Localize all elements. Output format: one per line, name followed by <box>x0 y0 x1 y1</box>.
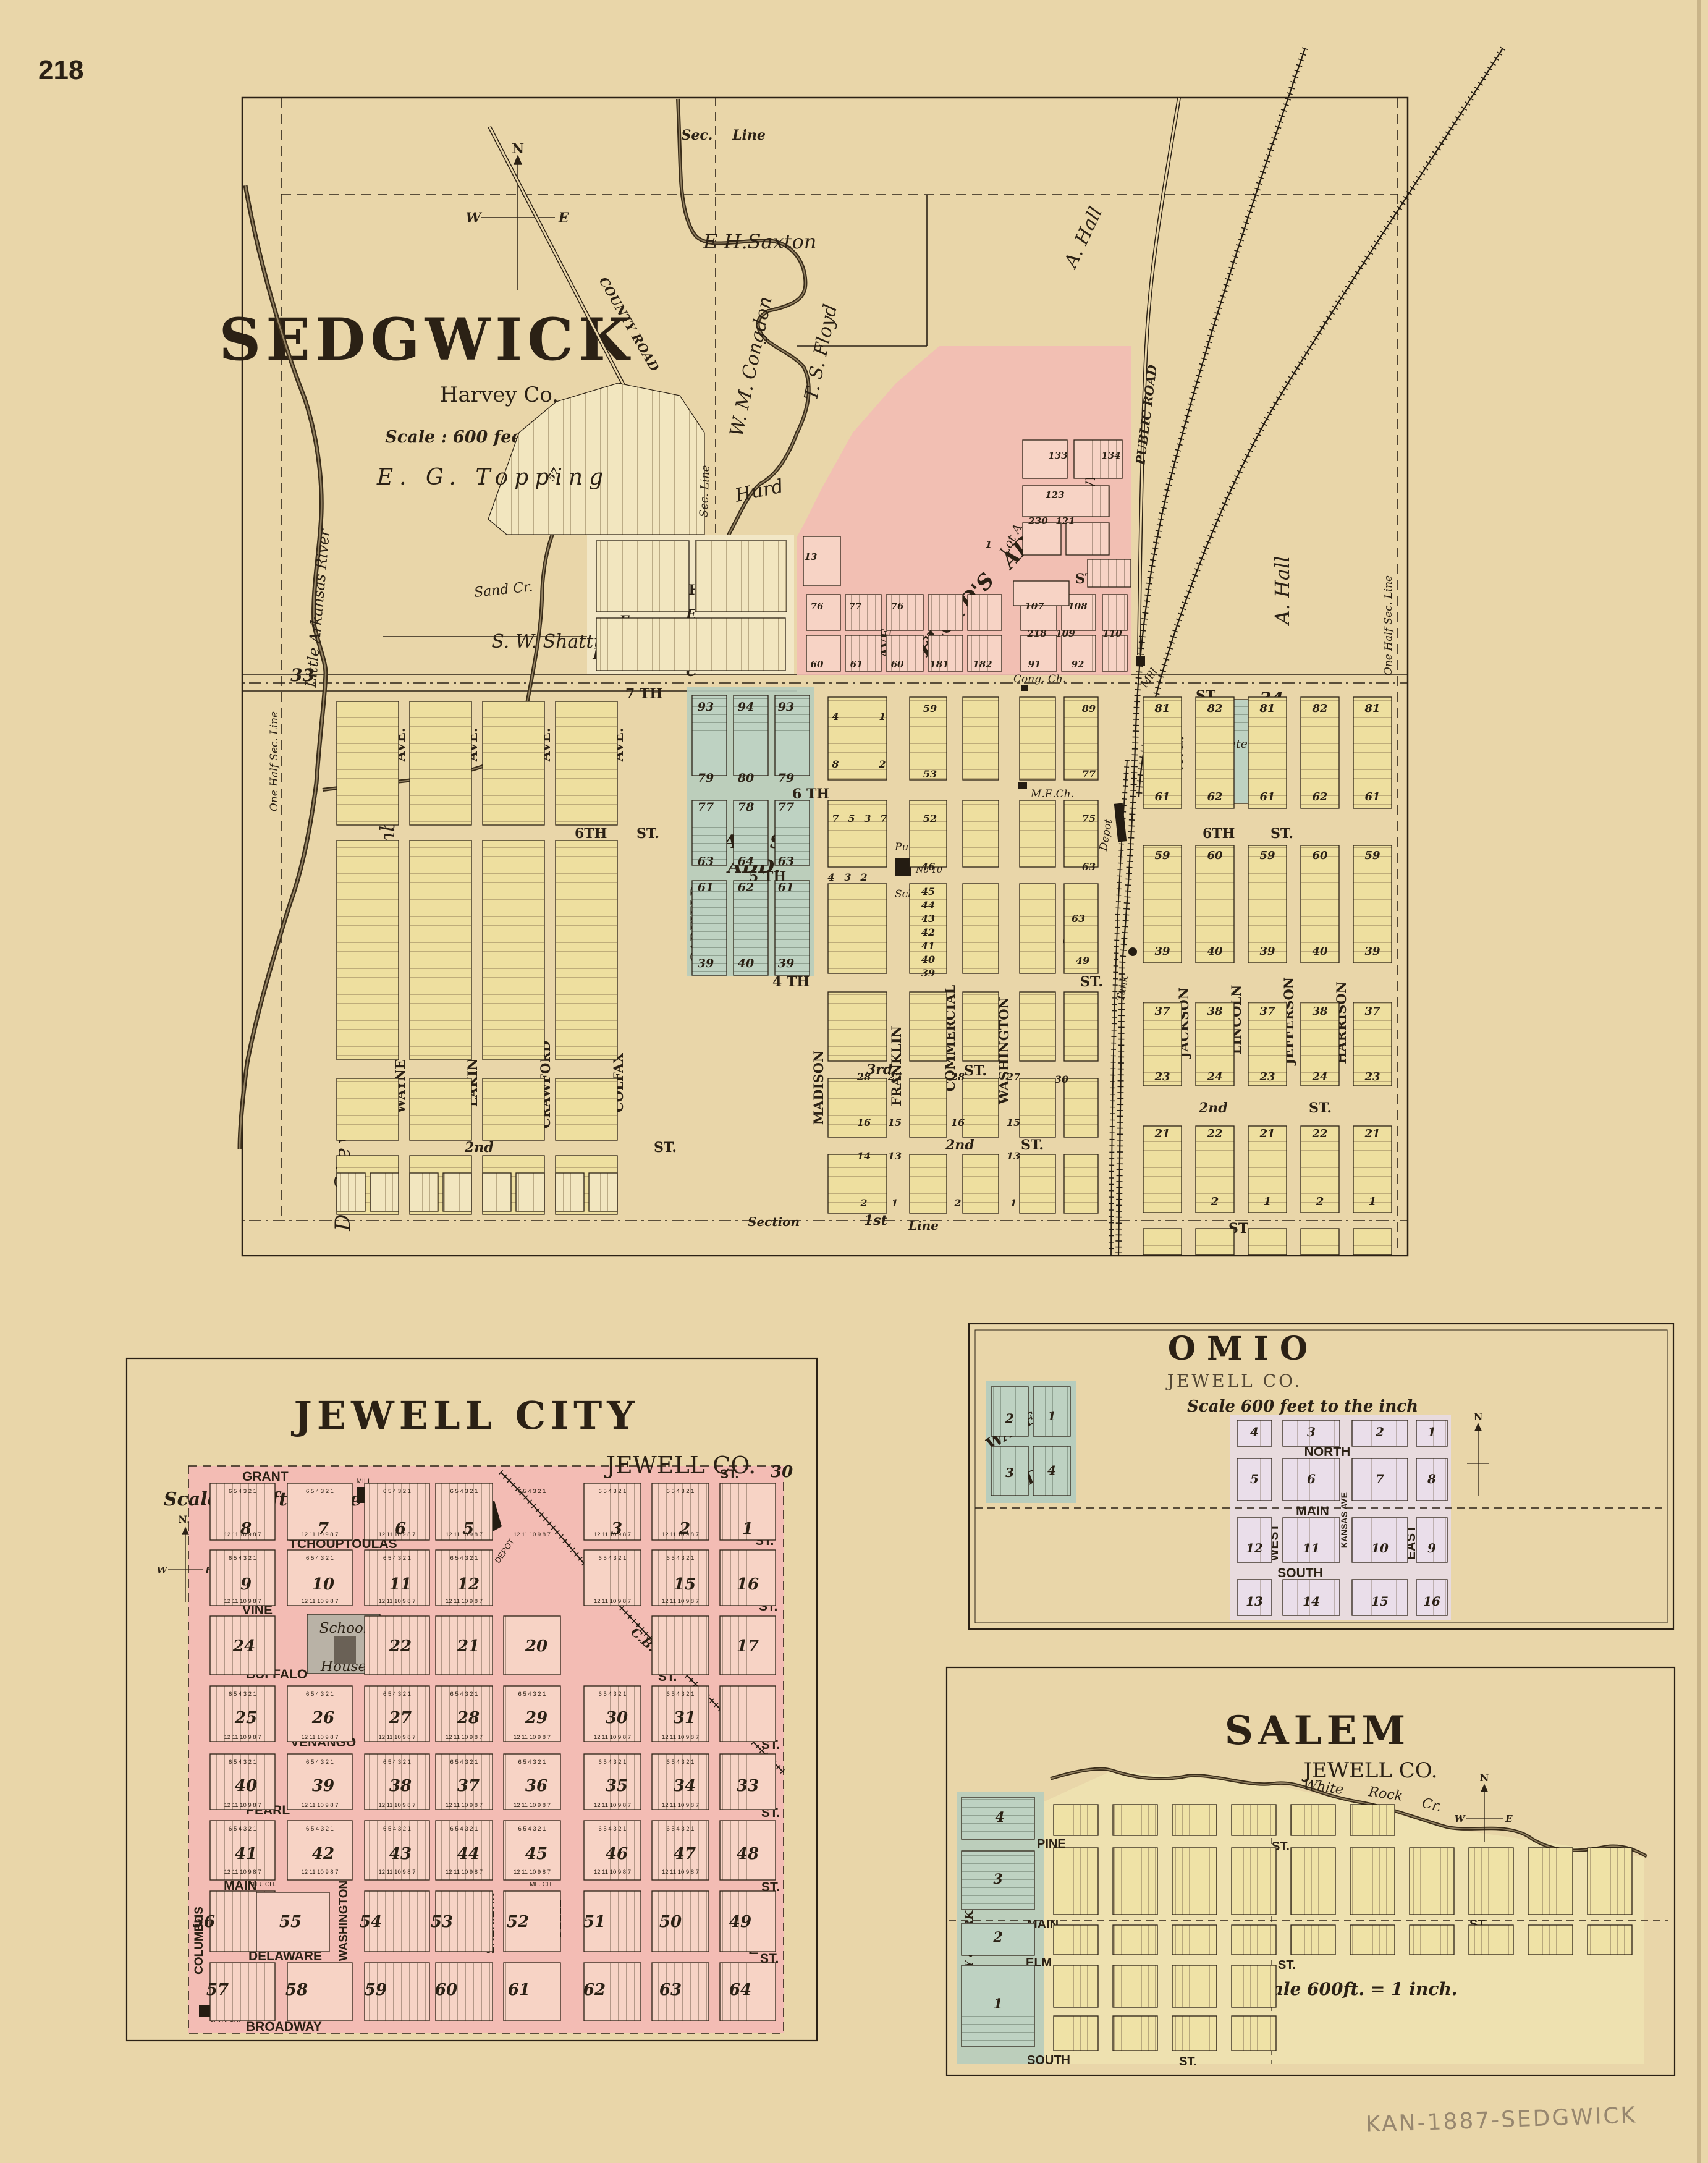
block-number: 7 <box>880 813 887 824</box>
town-block <box>910 1078 947 1137</box>
town-block <box>596 618 785 671</box>
block-number: 23 <box>1259 1070 1275 1083</box>
railroad-branch-northeast <box>1139 48 1503 797</box>
town-block <box>1113 2016 1157 2051</box>
lot-numbers: 6 5 4 3 2 1 <box>667 1555 695 1562</box>
block-number: 17 <box>737 1637 759 1656</box>
lot-numbers: 6 5 4 3 2 1 <box>599 1691 627 1698</box>
water-tank <box>1128 947 1137 956</box>
town-block <box>1291 1805 1335 1835</box>
block-number: 40 <box>921 954 935 965</box>
block-number: 16 <box>857 1117 871 1128</box>
town-block <box>337 840 399 1060</box>
town-block <box>1172 1848 1217 1915</box>
block-number: 28 <box>457 1709 480 1727</box>
block-number: 31 <box>674 1709 696 1727</box>
block-number: 30 <box>606 1709 628 1727</box>
lot-numbers: 6 5 4 3 2 1 <box>383 1555 411 1562</box>
block-number: 3 <box>993 1871 1002 1887</box>
town-block <box>806 595 840 630</box>
lot-numbers: 6 5 4 3 2 1 <box>518 1691 546 1698</box>
lot-numbers: 12 11 10 9 8 7 <box>378 1802 415 1809</box>
lot-numbers: 12 11 10 9 8 7 <box>594 1869 631 1876</box>
block-number: 63 <box>698 855 714 868</box>
block-number: 40 <box>738 957 754 970</box>
avenue-franklin: FRANKLIN <box>889 1026 904 1106</box>
town-block <box>556 701 617 825</box>
block-number: 58 <box>285 1981 308 1999</box>
half-sec-line-east-label: One Half Sec. Line <box>1382 575 1395 675</box>
block-number: 49 <box>729 1913 751 1931</box>
lot-numbers: 6 5 4 3 2 1 <box>229 1826 256 1832</box>
town-block <box>1088 559 1131 587</box>
town-block <box>1283 1518 1340 1562</box>
block-number: 1 <box>1427 1424 1436 1439</box>
street-2nd-central: 2nd <box>945 1137 974 1153</box>
lot-numbers: 12 11 10 9 8 7 <box>594 1802 631 1809</box>
town-block <box>886 595 923 630</box>
town-block <box>1020 992 1055 1061</box>
block-number: 56 <box>193 1913 215 1931</box>
town-block <box>516 1173 544 1211</box>
lot-numbers: 6 5 4 3 2 1 <box>599 1826 627 1832</box>
me-church-building <box>1018 782 1027 789</box>
block-number: 62 <box>738 881 754 894</box>
town-block <box>1350 1805 1395 1835</box>
block-number: 59 <box>1364 849 1380 862</box>
omio-street-main: MAIN <box>1296 1504 1329 1518</box>
block-number: 35 <box>606 1777 628 1795</box>
town-block <box>910 992 947 1061</box>
lot-numbers: 6 5 4 3 2 1 <box>599 1759 627 1766</box>
lot-numbers: 6 5 4 3 2 1 <box>599 1555 627 1562</box>
lot-numbers: 12 11 10 9 8 7 <box>301 1869 338 1876</box>
block-number: 81 <box>1154 702 1170 715</box>
block-number: 43 <box>921 913 935 925</box>
town-block <box>443 1173 471 1211</box>
block-number: 37 <box>1364 1005 1380 1018</box>
block-number: 25 <box>234 1709 257 1727</box>
lot-numbers: 12 11 10 9 8 7 <box>301 1531 338 1538</box>
omio-street-south: SOUTH <box>1277 1566 1323 1580</box>
block-number: 60 <box>435 1981 457 1999</box>
block-number: 30 <box>1055 1073 1068 1085</box>
compass-n-label: N <box>512 141 524 157</box>
block-number: 61 <box>1364 790 1380 803</box>
lot-numbers: 6 5 4 3 2 1 <box>599 1488 627 1495</box>
omio-ave-kansas: KANSAS AVE <box>1339 1492 1349 1548</box>
lot-numbers: 6 5 4 3 2 1 <box>450 1488 478 1495</box>
block-number: 38 <box>1312 1005 1328 1018</box>
block-number: 16 <box>1423 1594 1440 1609</box>
block-number: 134 <box>1101 450 1120 461</box>
town-block <box>1102 635 1127 671</box>
block-number: 22 <box>389 1637 412 1656</box>
town-block <box>1113 1848 1157 1915</box>
block-number: 40 <box>235 1777 257 1795</box>
salem-compass-n: N <box>1480 1772 1489 1784</box>
block-number: 40 <box>1312 945 1328 958</box>
town-block <box>1232 1965 1276 2007</box>
town-block <box>1054 1805 1098 1835</box>
street-1st: 1st <box>864 1213 887 1229</box>
town-block <box>1528 1925 1573 1955</box>
street-6th-east: 6TH <box>1203 826 1235 842</box>
block-number: 121 <box>1055 515 1075 527</box>
block-number: 61 <box>778 881 794 894</box>
block-number: 52 <box>507 1913 529 1931</box>
sec-line-label-a: Sec. <box>682 127 713 143</box>
block-number: 81 <box>1259 702 1275 715</box>
lot-numbers: 12 11 10 9 8 7 <box>514 1734 551 1741</box>
block-number: 1 <box>742 1520 753 1538</box>
block-number: 51 <box>583 1913 606 1931</box>
salem-scale: Scale 600ft. = 1 inch. <box>1249 1979 1457 1999</box>
town-block <box>695 541 787 612</box>
block-number: 39 <box>1259 945 1275 958</box>
block-number: 1 <box>879 711 886 722</box>
block-number: 64 <box>729 1981 751 1999</box>
town-block <box>963 884 999 973</box>
block-number: 7 <box>1376 1471 1384 1486</box>
cong-church-label: Cong. Ch. <box>1013 673 1066 685</box>
block-number: 2 <box>878 758 886 770</box>
lot-numbers: 12 11 10 9 8 7 <box>224 1802 261 1809</box>
block-number: 60 <box>1312 849 1328 862</box>
lot-numbers: 6 5 4 3 2 1 <box>667 1691 695 1698</box>
town-block <box>1172 2016 1217 2051</box>
town-block <box>963 697 999 780</box>
town-block <box>1232 1925 1276 1955</box>
block-number: 93 <box>698 700 714 714</box>
lot-numbers: 12 11 10 9 8 7 <box>662 1598 699 1605</box>
street-7th: 7 TH <box>625 686 662 702</box>
lot-numbers: 12 11 10 9 8 7 <box>378 1598 415 1605</box>
block-number: 15 <box>1371 1594 1389 1609</box>
street-2nd-west: 2nd <box>464 1140 494 1156</box>
river-label: Little Arkansas River <box>302 528 334 689</box>
lot-numbers: 12 11 10 9 8 7 <box>224 1869 261 1876</box>
town-block <box>589 1173 617 1211</box>
block-number: 28 <box>950 1071 965 1083</box>
street-6th-east-st: ST. <box>1270 826 1293 842</box>
town-block <box>828 800 887 867</box>
town-block <box>1353 1229 1392 1255</box>
lot-numbers: 12 11 10 9 8 7 <box>301 1598 338 1605</box>
block-number: 64 <box>738 855 754 868</box>
town-block <box>828 884 887 973</box>
block-number: 15 <box>674 1575 696 1594</box>
block-number: 40 <box>1207 945 1223 958</box>
town-block <box>910 800 947 867</box>
block-number: 89 <box>1081 703 1096 714</box>
town-block <box>483 701 544 825</box>
mill-label: Mill <box>1138 666 1160 691</box>
block-number: 4 <box>832 711 839 722</box>
lot-numbers: 6 5 4 3 2 1 <box>667 1826 695 1832</box>
block-number: 60 <box>891 659 904 670</box>
block-number: 5 <box>848 813 855 824</box>
half-sec-line-west-label: One Half Sec. Line <box>268 711 281 811</box>
lot-numbers: 12 11 10 9 8 7 <box>446 1802 483 1809</box>
block-number: 59 <box>1154 849 1170 862</box>
block-number: 181 <box>929 659 949 670</box>
public-road-label: PUBLIC ROAD <box>1133 363 1160 466</box>
block-number: 93 <box>778 700 794 714</box>
lot-numbers: 6 5 4 3 2 1 <box>518 1759 546 1766</box>
block-number: 1 <box>1010 1197 1017 1209</box>
block-number: 38 <box>1207 1005 1223 1018</box>
town-block <box>483 1173 511 1211</box>
town-block <box>410 1173 438 1211</box>
block-number: 45 <box>921 886 935 897</box>
town-block <box>1054 1848 1098 1915</box>
block-number: 41 <box>921 940 935 952</box>
avenue-madison: MADISON <box>811 1051 826 1125</box>
lot-numbers: 6 5 4 3 2 1 <box>383 1691 411 1698</box>
block-number: 2 <box>953 1197 961 1209</box>
town-block <box>1020 800 1055 867</box>
page-number: 218 <box>38 55 83 85</box>
block-number: 29 <box>525 1709 547 1727</box>
block-number: 39 <box>1154 945 1170 958</box>
lot-numbers: 6 5 4 3 2 1 <box>306 1759 334 1766</box>
town-block <box>410 701 471 825</box>
creek-label-rock: Rock <box>1367 1784 1403 1805</box>
block-number: 41 <box>235 1845 257 1863</box>
owner-floyd: T. S. Floyd <box>800 302 842 402</box>
block-number: 27 <box>389 1709 412 1727</box>
street-2nd-east-st: ST. <box>1309 1100 1332 1116</box>
town-block <box>1232 1848 1276 1915</box>
street-2nd-central-st: ST. <box>1021 1137 1044 1153</box>
lot-numbers: 12 11 10 9 8 7 <box>662 1869 699 1876</box>
omio-scale: Scale 600 feet to the inch <box>1187 1397 1418 1416</box>
town-block <box>337 1173 365 1211</box>
block-number: 12 <box>457 1575 480 1594</box>
block-number: 39 <box>1364 945 1380 958</box>
lot-numbers: 6 5 4 3 2 1 <box>667 1759 695 1766</box>
block-number: 61 <box>1154 790 1170 803</box>
jewell-compass-w: W <box>157 1565 169 1576</box>
block-number: 77 <box>1082 768 1096 780</box>
block-number: 3 <box>1005 1465 1014 1480</box>
lot-numbers: 12 11 10 9 8 7 <box>224 1734 261 1741</box>
block-number: 44 <box>457 1845 480 1863</box>
lot-numbers: 6 5 4 3 2 1 <box>306 1826 334 1832</box>
block-number: 82 <box>1311 702 1327 715</box>
block-number: 16 <box>737 1575 759 1594</box>
block-number: 57 <box>206 1981 229 1999</box>
atlas-page: N W E SEDGWICK Harvey Co. Scale : 600 fe… <box>0 0 1708 2163</box>
block-number: 79 <box>698 771 714 785</box>
salem-title: SALEM <box>1225 1708 1411 1754</box>
school-building <box>895 858 911 876</box>
block-number: 59 <box>1259 849 1275 862</box>
jewell-me-church-label: ME. CH. <box>530 1881 553 1888</box>
town-block <box>1023 523 1061 555</box>
lot-numbers: 6 5 4 3 2 1 <box>450 1759 478 1766</box>
salem-street-elm-st: ST. <box>1278 1958 1296 1972</box>
town-block <box>1410 1925 1454 1955</box>
jewell-chr-church-label: CHR. CH. <box>248 1881 276 1888</box>
town-block <box>1113 1965 1157 2007</box>
town-block <box>1232 1805 1276 1835</box>
block-number: 107 <box>1025 601 1044 612</box>
town-block <box>828 1154 887 1213</box>
block-number: 1 <box>1264 1195 1272 1208</box>
block-number: 109 <box>1055 628 1075 639</box>
block-number: 92 <box>1072 659 1084 670</box>
town-block <box>968 595 1002 630</box>
block-number: 2 <box>1211 1195 1219 1208</box>
block-number: 11 <box>1303 1541 1320 1556</box>
omio-street-north: NORTH <box>1304 1445 1351 1459</box>
block-number: 53 <box>431 1913 453 1931</box>
town-block <box>1588 1848 1632 1915</box>
block-number: 3 <box>1307 1424 1316 1439</box>
town-block <box>1054 2016 1098 2051</box>
town-block <box>1291 1925 1335 1955</box>
block-number: 43 <box>389 1845 412 1863</box>
block-number: 61 <box>850 659 863 670</box>
block-number: 24 <box>1206 1070 1222 1083</box>
lot-numbers: 6 5 4 3 2 1 <box>383 1826 411 1832</box>
street-4th-st: ST. <box>1080 974 1103 990</box>
town-block <box>1113 1925 1157 1955</box>
section-bottom-line-label: Line <box>908 1218 939 1233</box>
block-number: 230 <box>1028 515 1048 527</box>
salem-street-south-st: ST. <box>1179 2055 1197 2068</box>
block-number: 1 <box>891 1197 898 1209</box>
block-number: 78 <box>738 800 754 814</box>
block-number: 23 <box>1154 1070 1170 1083</box>
street-6th-west: 6TH <box>575 826 607 842</box>
omio-compass-n: N <box>1474 1411 1483 1423</box>
town-block <box>720 1686 776 1742</box>
block-number: 61 <box>508 1981 530 1999</box>
lot-numbers: 6 5 4 3 2 1 <box>229 1759 256 1766</box>
block-number: 37 <box>457 1777 480 1795</box>
town-block <box>963 1078 999 1137</box>
block-number: 1 <box>1047 1408 1056 1423</box>
lot-numbers: 6 5 4 3 2 1 <box>229 1691 256 1698</box>
salem-compass-w: W <box>1455 1813 1466 1824</box>
lot-numbers: 12 11 10 9 8 7 <box>594 1734 631 1741</box>
block-number: 1 <box>986 539 992 550</box>
block-number: 24 <box>232 1637 255 1656</box>
jewell-compass-n: N. <box>178 1513 190 1525</box>
block-number: 33 <box>737 1777 759 1795</box>
block-number: 5 <box>1250 1471 1259 1486</box>
block-number: 63 <box>659 1981 682 1999</box>
block-number: 45 <box>525 1845 547 1863</box>
lot-numbers: 12 11 10 9 8 7 <box>378 1869 415 1876</box>
block-number: 7 <box>832 813 839 824</box>
sec-line-vertical-label: Sec. Line <box>698 465 712 517</box>
block-number: 15 <box>1007 1117 1020 1128</box>
block-number: 34 <box>674 1777 696 1795</box>
lot-numbers: 12 11 10 9 8 7 <box>514 1802 551 1809</box>
town-block <box>337 1078 399 1140</box>
block-number: 62 <box>1207 790 1222 803</box>
town-block <box>1350 1925 1395 1955</box>
block-number: 1 <box>1369 1195 1377 1208</box>
block-number: 46 <box>921 861 935 873</box>
lot-numbers: 6 5 4 3 2 1 <box>518 1826 546 1832</box>
jewell-street-grant: GRANT <box>242 1470 289 1484</box>
town-block <box>1064 1078 1098 1137</box>
lot-numbers: 6 5 4 3 2 1 <box>518 1488 546 1495</box>
town-block <box>1352 1518 1408 1562</box>
lot-numbers: 6 5 4 3 2 1 <box>450 1826 478 1832</box>
town-block <box>556 1173 584 1211</box>
sedgwick-compass <box>481 156 555 290</box>
town-block <box>1350 1848 1395 1915</box>
compass-w-label: W <box>466 210 483 226</box>
handwritten-annotation: KAN-1887-SEDGWICK <box>1365 2102 1637 2137</box>
town-block <box>1064 992 1098 1061</box>
town-block <box>556 840 617 1060</box>
town-block <box>1023 486 1109 517</box>
owner-hall-east: A. Hall <box>1270 556 1294 627</box>
block-number: 63 <box>1072 913 1085 925</box>
block-number: 21 <box>457 1637 480 1656</box>
lot-numbers: 6 5 4 3 2 1 <box>306 1555 334 1562</box>
block-number: 6 <box>1307 1471 1316 1486</box>
block-number: 59 <box>923 703 937 714</box>
town-block <box>410 1078 471 1140</box>
owner-topping: E. G. Topping <box>376 465 609 490</box>
lot-numbers: 12 11 10 9 8 7 <box>514 1531 551 1538</box>
lot-numbers: 12 11 10 9 8 7 <box>594 1598 631 1605</box>
lot-numbers: 12 11 10 9 8 7 <box>378 1734 415 1741</box>
block-number: 22 <box>1206 1127 1222 1140</box>
block-number: 76 <box>811 601 824 612</box>
block-number: 42 <box>312 1845 334 1863</box>
block-number: 21 <box>1259 1127 1275 1140</box>
town-block <box>1416 1518 1447 1562</box>
town-block <box>1172 1805 1217 1835</box>
mill-building <box>1136 656 1145 666</box>
block-number: 11 <box>389 1575 412 1594</box>
block-number: 9 <box>1427 1541 1436 1556</box>
block-number: 39 <box>312 1777 334 1795</box>
block-number: 48 <box>737 1845 759 1863</box>
block-number: 50 <box>659 1913 682 1931</box>
block-number: 14 <box>857 1150 871 1162</box>
owner-hall-north: A. Hall <box>1059 203 1107 273</box>
block-number: 54 <box>360 1913 382 1931</box>
lot-numbers: 12 11 10 9 8 7 <box>301 1734 338 1741</box>
town-block <box>337 701 399 825</box>
generated-town-blocks: 9394937980797778776364636162613940398182… <box>193 440 1632 2051</box>
creek-label-cr: Cr. <box>1421 1795 1443 1814</box>
block-number: 2 <box>860 1197 867 1209</box>
lot-numbers: 6 5 4 3 2 1 <box>667 1488 695 1495</box>
block-number: 60 <box>1207 849 1223 862</box>
block-number: 8 <box>1427 1471 1436 1486</box>
town-block <box>1020 697 1055 780</box>
block-number: 182 <box>973 659 992 670</box>
block-number: 218 <box>1026 628 1047 639</box>
lot-numbers: 12 11 10 9 8 7 <box>224 1598 261 1605</box>
atlas-page-svg: N W E SEDGWICK Harvey Co. Scale : 600 fe… <box>0 0 1708 2163</box>
block-number: 3 <box>864 813 871 824</box>
block-number: 63 <box>778 855 794 868</box>
block-number: 47 <box>674 1845 696 1863</box>
block-number: 28 <box>856 1071 871 1083</box>
